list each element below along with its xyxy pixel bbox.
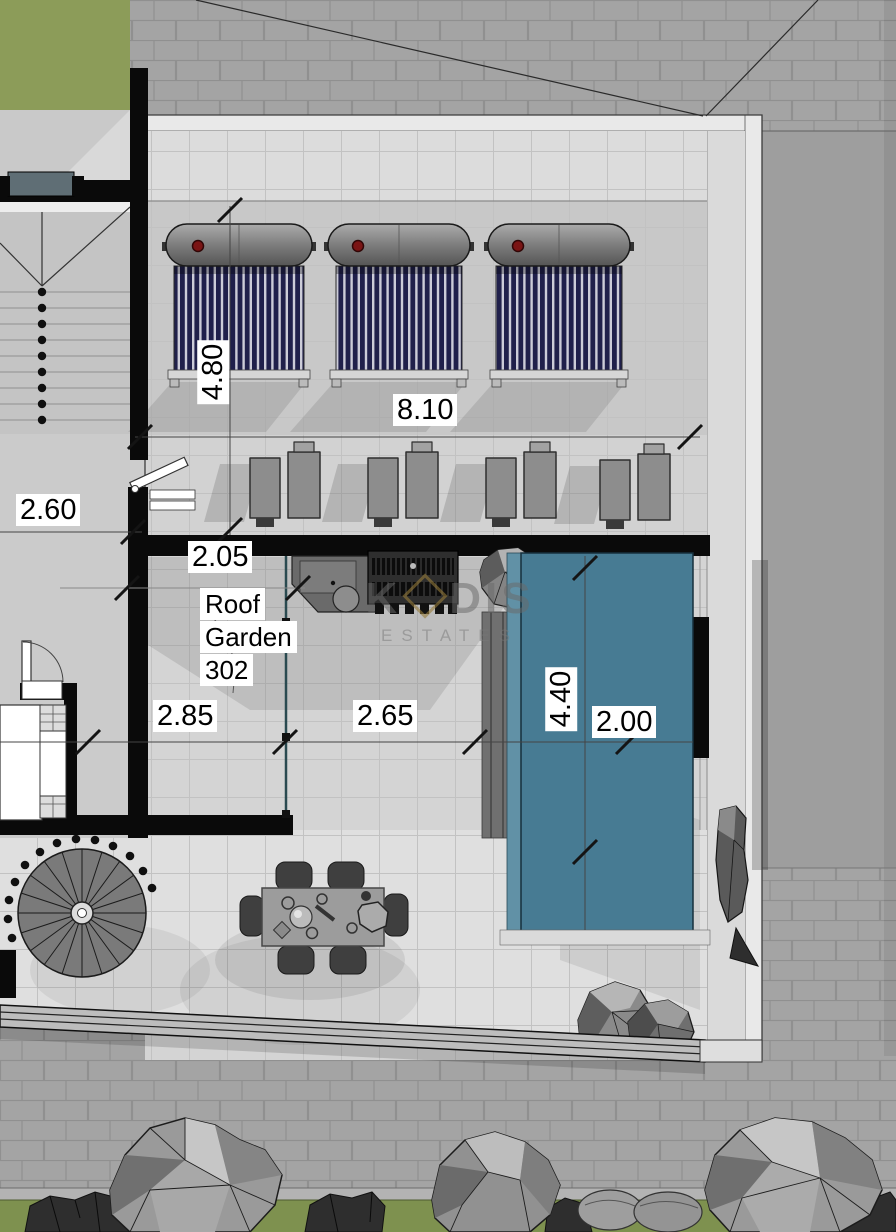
room-label-line1: Roof xyxy=(200,588,265,620)
roof-garden-floor-plan: Roof Garden 302 4.80 8.10 2.60 2.05 2.85… xyxy=(0,0,896,1232)
window-panel xyxy=(40,730,66,796)
chair xyxy=(328,862,364,890)
dimension-label-440: 4.40 xyxy=(545,667,577,731)
dimension-label-200: 2.00 xyxy=(592,706,656,738)
room-label-line2: Garden xyxy=(200,621,297,653)
chair xyxy=(240,896,264,936)
chair xyxy=(330,946,366,974)
dimension-label-285: 2.85 xyxy=(153,700,217,732)
dimension-label-265: 2.65 xyxy=(353,700,417,732)
grill xyxy=(368,551,458,614)
dimension-label-810: 8.10 xyxy=(393,394,457,426)
sink xyxy=(333,586,359,612)
plan-drawing xyxy=(0,0,896,1232)
chair xyxy=(278,946,314,974)
room-label: Roof Garden 302 xyxy=(200,588,297,686)
dimension-label-260: 2.60 xyxy=(16,494,80,526)
window-panel xyxy=(0,705,42,820)
bbq-counter xyxy=(292,551,458,614)
dimension-label-205: 2.05 xyxy=(188,541,252,573)
dimension-label-480: 4.80 xyxy=(197,340,229,404)
lawn-top-left xyxy=(0,0,130,110)
street-trees xyxy=(110,1118,882,1232)
room-label-line3: 302 xyxy=(200,654,253,686)
pool xyxy=(500,553,710,945)
door-leaf xyxy=(22,641,31,682)
chair xyxy=(276,862,312,890)
